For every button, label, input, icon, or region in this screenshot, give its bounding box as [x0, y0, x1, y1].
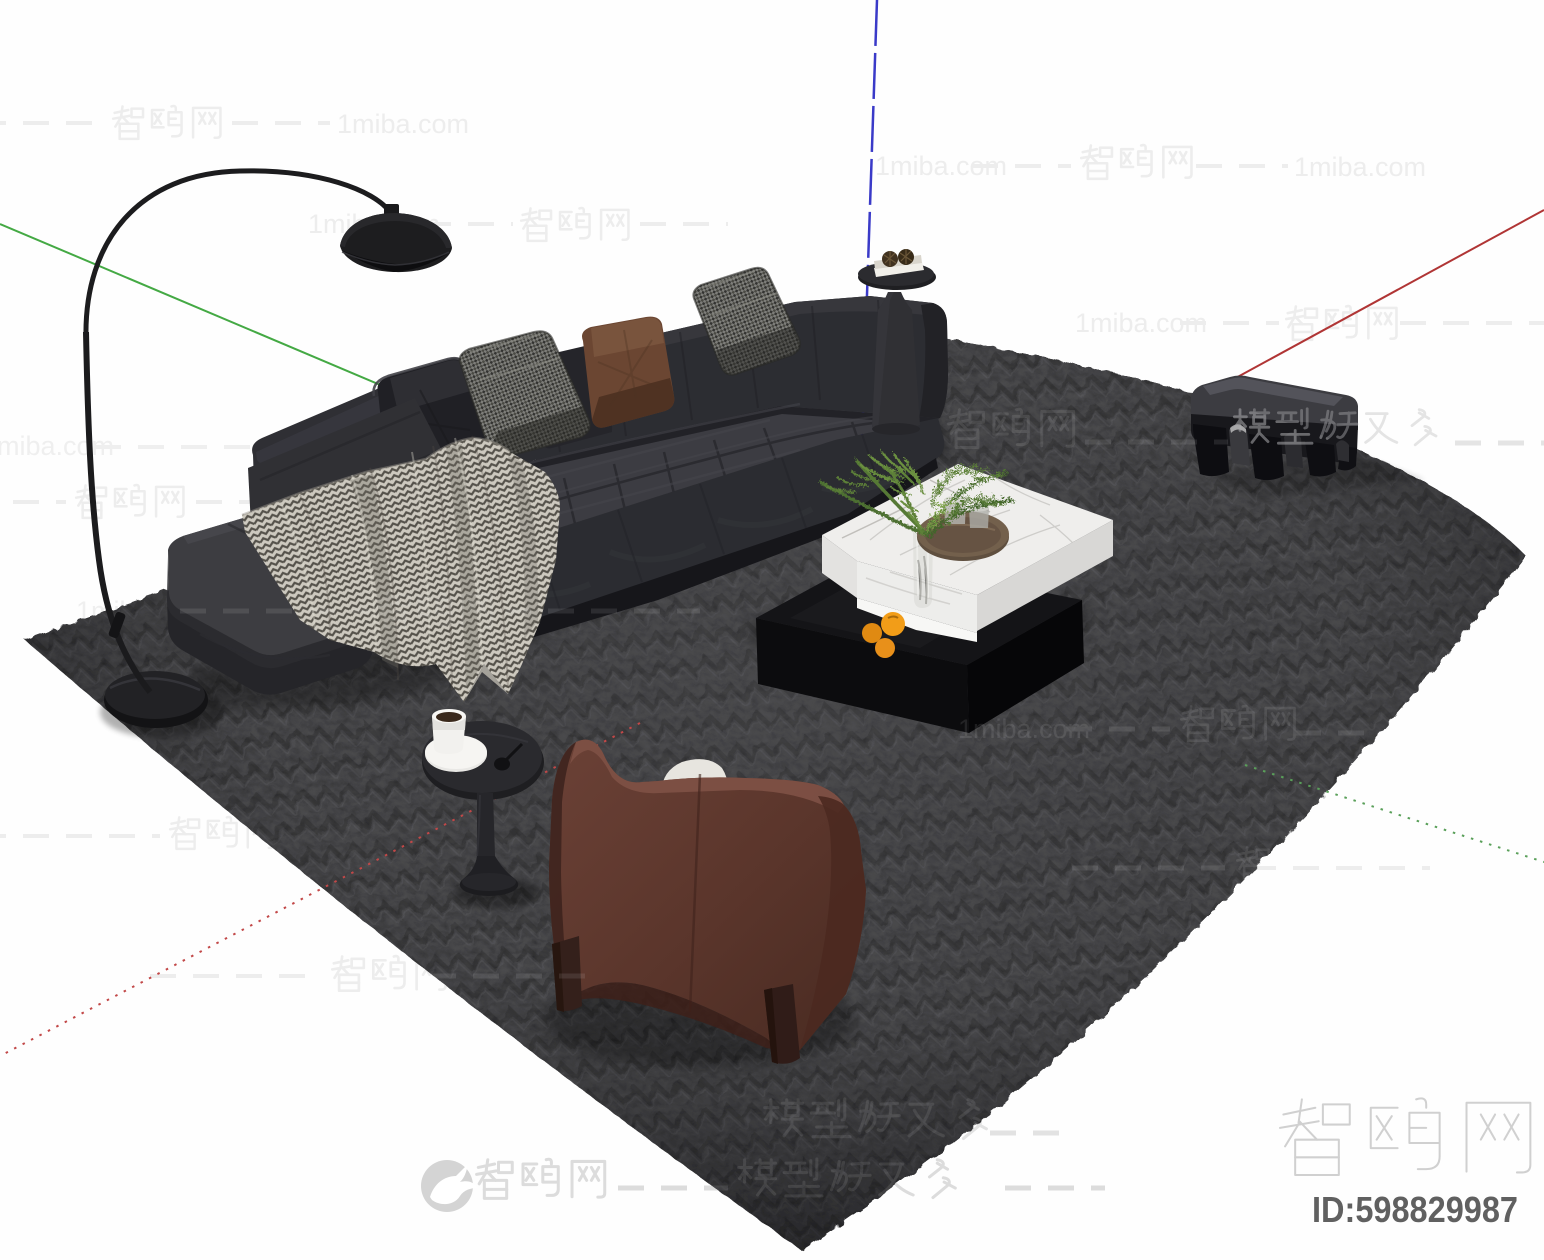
svg-text:1miba.com: 1miba.com — [337, 109, 469, 139]
svg-text:1miba.com: 1miba.com — [1294, 152, 1426, 182]
svg-text:ID:598829987: ID:598829987 — [1312, 1189, 1518, 1230]
